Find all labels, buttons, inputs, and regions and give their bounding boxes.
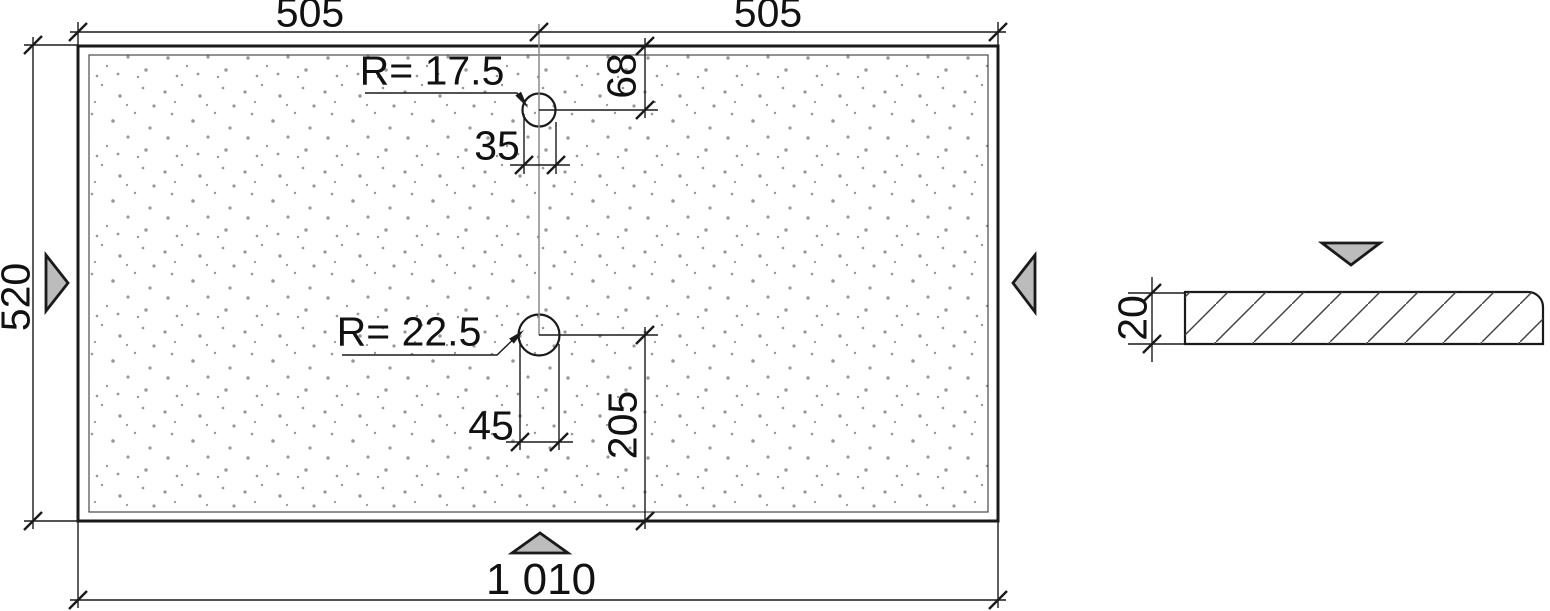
view-arrow-right-icon (1013, 255, 1035, 312)
plan-view (78, 24, 998, 521)
dim-label-hole2-width: 45 (468, 406, 514, 447)
section-view (1128, 277, 1543, 362)
dim-label-thickness: 20 (1113, 295, 1154, 341)
dim-label-bottom-total: 1 010 (486, 558, 596, 602)
radius-label-hole1: R= 17.5 (360, 51, 505, 92)
drawing-canvas (0, 0, 1550, 611)
technical-drawing-page: 505 505 1 010 520 R= 17.5 68 35 R= 22.5 … (0, 0, 1550, 611)
view-arrow-section-icon (1322, 243, 1380, 265)
dim-label-height: 520 (0, 263, 37, 331)
dim-label-hole1-offset: 68 (602, 53, 643, 99)
dim-label-hole1-width: 35 (474, 126, 520, 167)
dim-label-top-left: 505 (276, 0, 344, 34)
section-hatching (1185, 292, 1543, 344)
view-arrow-left-icon (46, 255, 68, 311)
dim-label-hole2-offset: 205 (603, 391, 644, 459)
view-arrow-bottom-icon (512, 533, 568, 553)
dim-label-top-right: 505 (734, 0, 802, 34)
radius-label-hole2: R= 22.5 (337, 312, 482, 353)
